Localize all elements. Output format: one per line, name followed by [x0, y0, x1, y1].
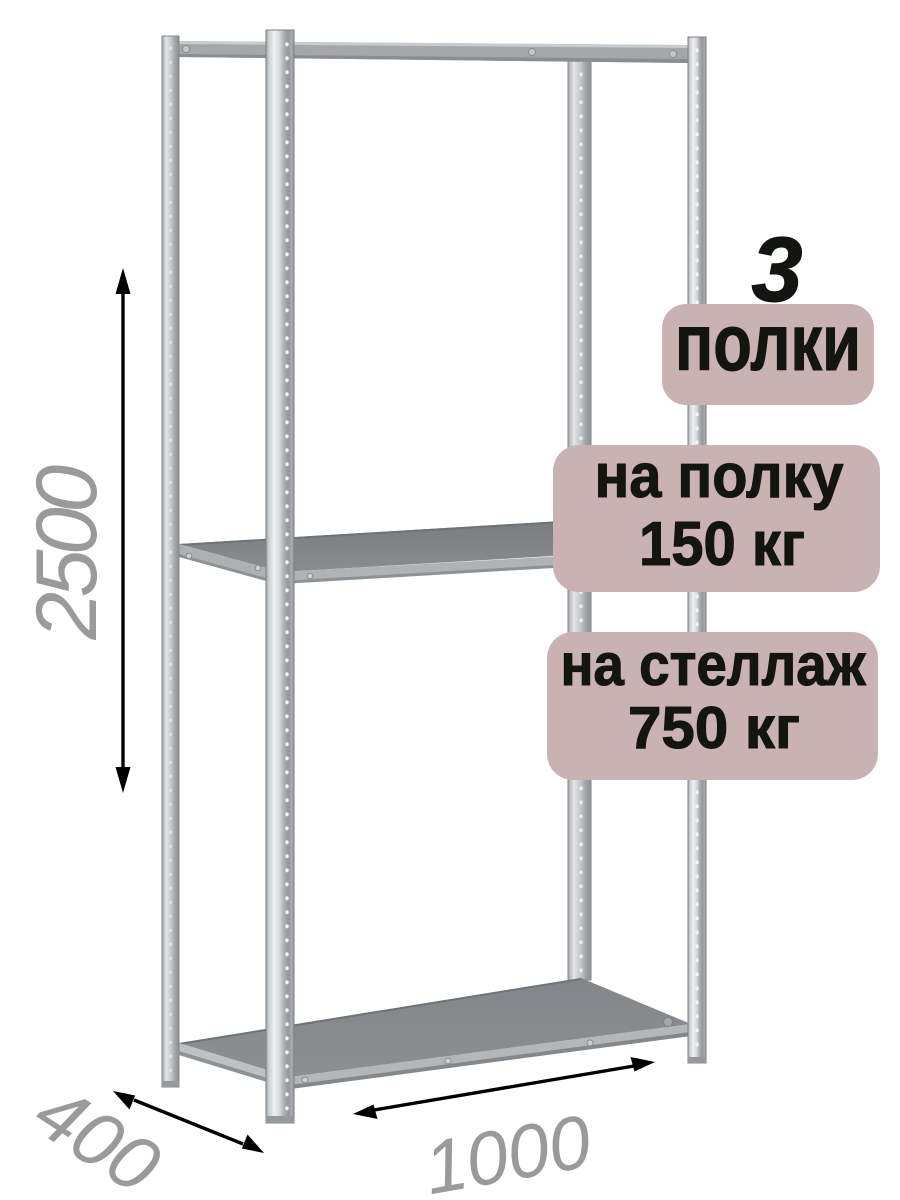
svg-text:на полку: на полку — [595, 442, 844, 511]
svg-text:на стеллаж: на стеллаж — [561, 632, 867, 698]
svg-text:1000: 1000 — [418, 1098, 597, 1200]
svg-text:150 кг: 150 кг — [639, 510, 805, 579]
svg-text:полки: полки — [675, 298, 861, 387]
svg-text:400: 400 — [20, 1068, 175, 1200]
svg-text:750 кг: 750 кг — [628, 695, 800, 761]
svg-text:2500: 2500 — [19, 465, 115, 641]
